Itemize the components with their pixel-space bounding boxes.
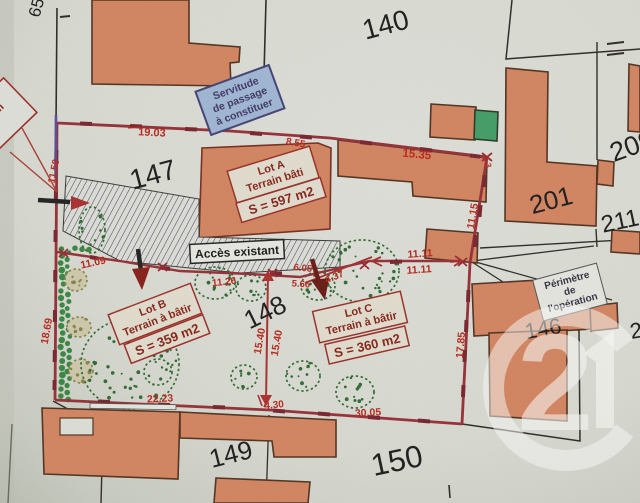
svg-text:2: 2 [517,306,594,460]
